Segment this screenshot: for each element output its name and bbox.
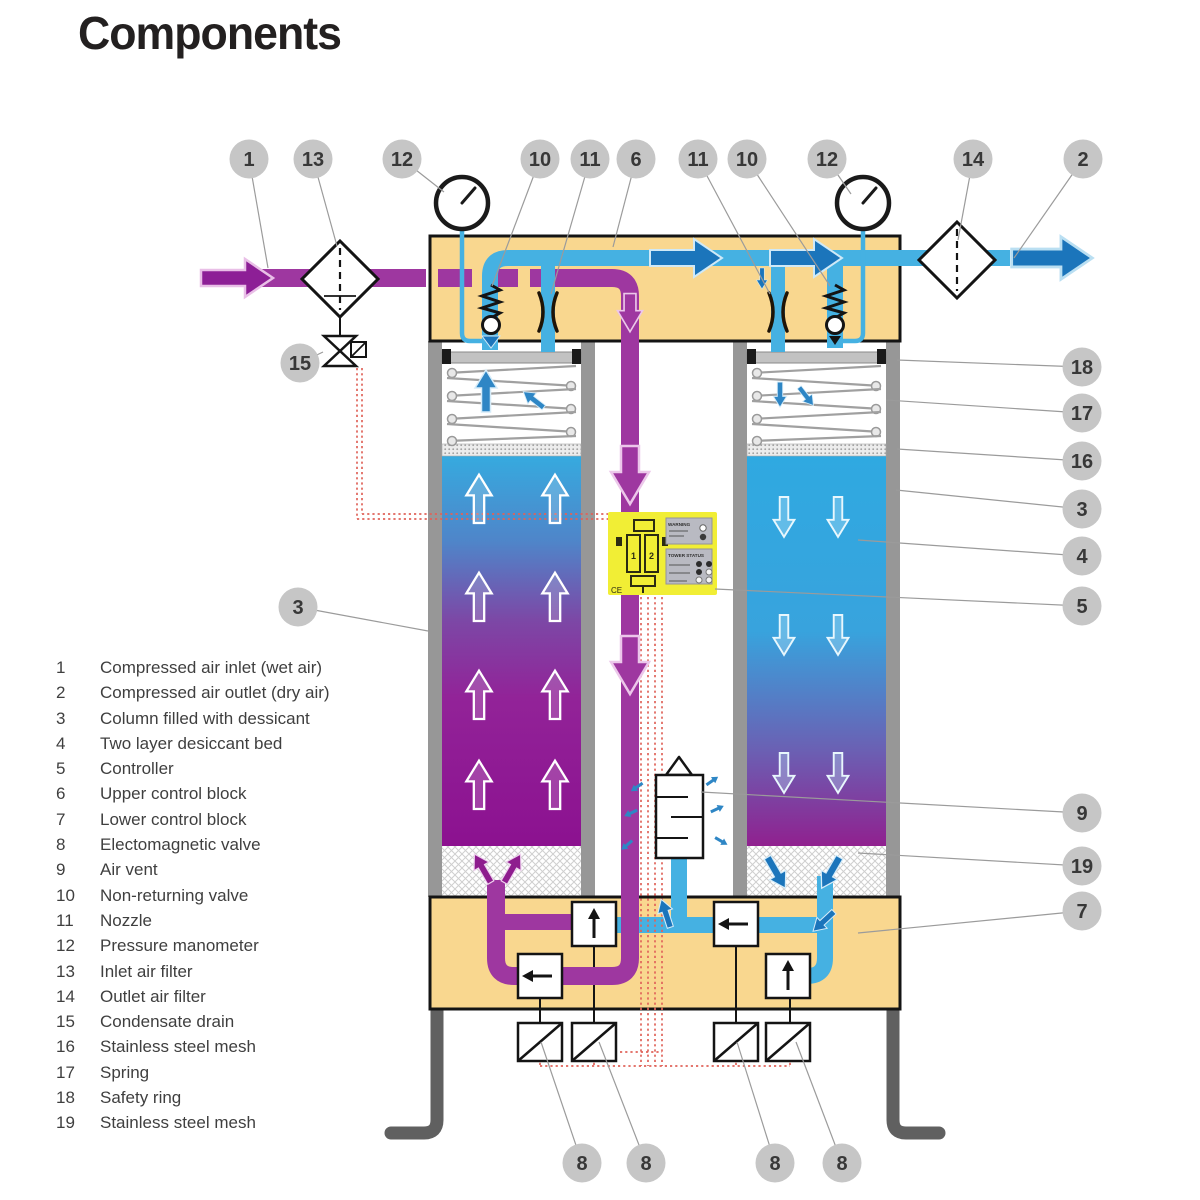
inlet-air-filter — [302, 241, 378, 317]
svg-text:3: 3 — [292, 597, 303, 619]
right-desiccant-bed — [747, 456, 886, 846]
tower-1-label: 1 — [631, 551, 636, 561]
svg-text:1: 1 — [243, 149, 254, 171]
lower-valve-left-up — [572, 902, 616, 946]
left-top-plate — [442, 352, 581, 363]
electromagnetic-valve-3 — [714, 1023, 758, 1061]
svg-text:6: 6 — [630, 149, 641, 171]
warning-label: WARNING — [668, 522, 691, 527]
callout-16: 16 — [897, 442, 1102, 481]
callout-17: 17 — [886, 394, 1102, 433]
callout-8: 8 — [737, 1042, 795, 1183]
ce-mark: CE — [611, 586, 622, 595]
callout-8: 8 — [541, 1042, 602, 1183]
svg-text:11: 11 — [579, 149, 600, 171]
callout-1: 1 — [230, 140, 269, 269]
callout-8: 8 — [796, 1042, 862, 1183]
svg-text:2: 2 — [1077, 149, 1088, 171]
condensate-drain — [324, 317, 366, 366]
safety-ring-right — [747, 349, 756, 364]
inlet-arrow — [201, 259, 273, 297]
safety-ring-right-2 — [877, 349, 886, 364]
svg-text:16: 16 — [1071, 451, 1093, 473]
schematic-svg: 1 2 WARNING TOWER STATUS CE — [0, 0, 1200, 1200]
svg-text:10: 10 — [529, 149, 551, 171]
left-top-mesh — [442, 444, 581, 456]
callout-8: 8 — [599, 1042, 666, 1183]
electromagnetic-valve-1 — [518, 1023, 562, 1061]
stand-legs — [391, 1010, 939, 1133]
svg-text:5: 5 — [1076, 596, 1087, 618]
svg-text:10: 10 — [736, 149, 758, 171]
svg-text:8: 8 — [640, 1153, 651, 1175]
svg-text:9: 9 — [1076, 803, 1087, 825]
tower-status-label: TOWER STATUS — [668, 553, 704, 558]
diagram-canvas: Components 1Compressed air inlet (wet ai… — [0, 0, 1200, 1200]
svg-text:4: 4 — [1076, 546, 1088, 568]
lower-valve-right-up — [766, 954, 810, 998]
lower-valve-right-out — [714, 902, 758, 946]
right-top-mesh — [747, 444, 886, 456]
safety-ring-left-2 — [572, 349, 581, 364]
callout-3: 3 — [896, 490, 1102, 529]
controller-warning-panel: WARNING — [666, 518, 712, 544]
safety-ring-left — [442, 349, 451, 364]
callout-13: 13 — [294, 140, 338, 247]
svg-text:17: 17 — [1071, 403, 1093, 425]
right-column — [733, 341, 900, 897]
left-column — [428, 341, 595, 897]
svg-text:7: 7 — [1076, 901, 1087, 923]
svg-text:19: 19 — [1071, 856, 1093, 878]
controller-status-panel: TOWER STATUS — [666, 549, 712, 584]
tower-2-label: 2 — [649, 551, 654, 561]
svg-text:18: 18 — [1071, 357, 1093, 379]
svg-text:13: 13 — [302, 149, 324, 171]
right-top-plate — [747, 352, 886, 363]
callout-3: 3 — [279, 588, 429, 632]
svg-text:15: 15 — [289, 353, 311, 375]
svg-text:3: 3 — [1076, 499, 1087, 521]
callout-15: 15 — [281, 344, 324, 383]
callout-12: 12 — [383, 140, 445, 193]
lower-valve-left-out — [518, 954, 562, 998]
outlet-air-filter — [919, 222, 995, 298]
callout-6: 6 — [613, 140, 656, 248]
callout-2: 2 — [1014, 140, 1103, 259]
svg-text:12: 12 — [816, 149, 838, 171]
svg-text:8: 8 — [576, 1153, 587, 1175]
svg-text:8: 8 — [836, 1153, 847, 1175]
svg-text:14: 14 — [962, 149, 985, 171]
svg-text:11: 11 — [687, 149, 708, 171]
svg-text:8: 8 — [769, 1153, 780, 1175]
electromagnetic-valve-4 — [766, 1023, 810, 1061]
callout-18: 18 — [897, 348, 1102, 387]
pressure-gauge-left — [436, 177, 488, 229]
electromagnetic-valve-2 — [572, 1023, 616, 1061]
controller: 1 2 WARNING TOWER STATUS CE — [608, 512, 717, 595]
air-vent — [656, 757, 703, 858]
svg-text:12: 12 — [391, 149, 413, 171]
